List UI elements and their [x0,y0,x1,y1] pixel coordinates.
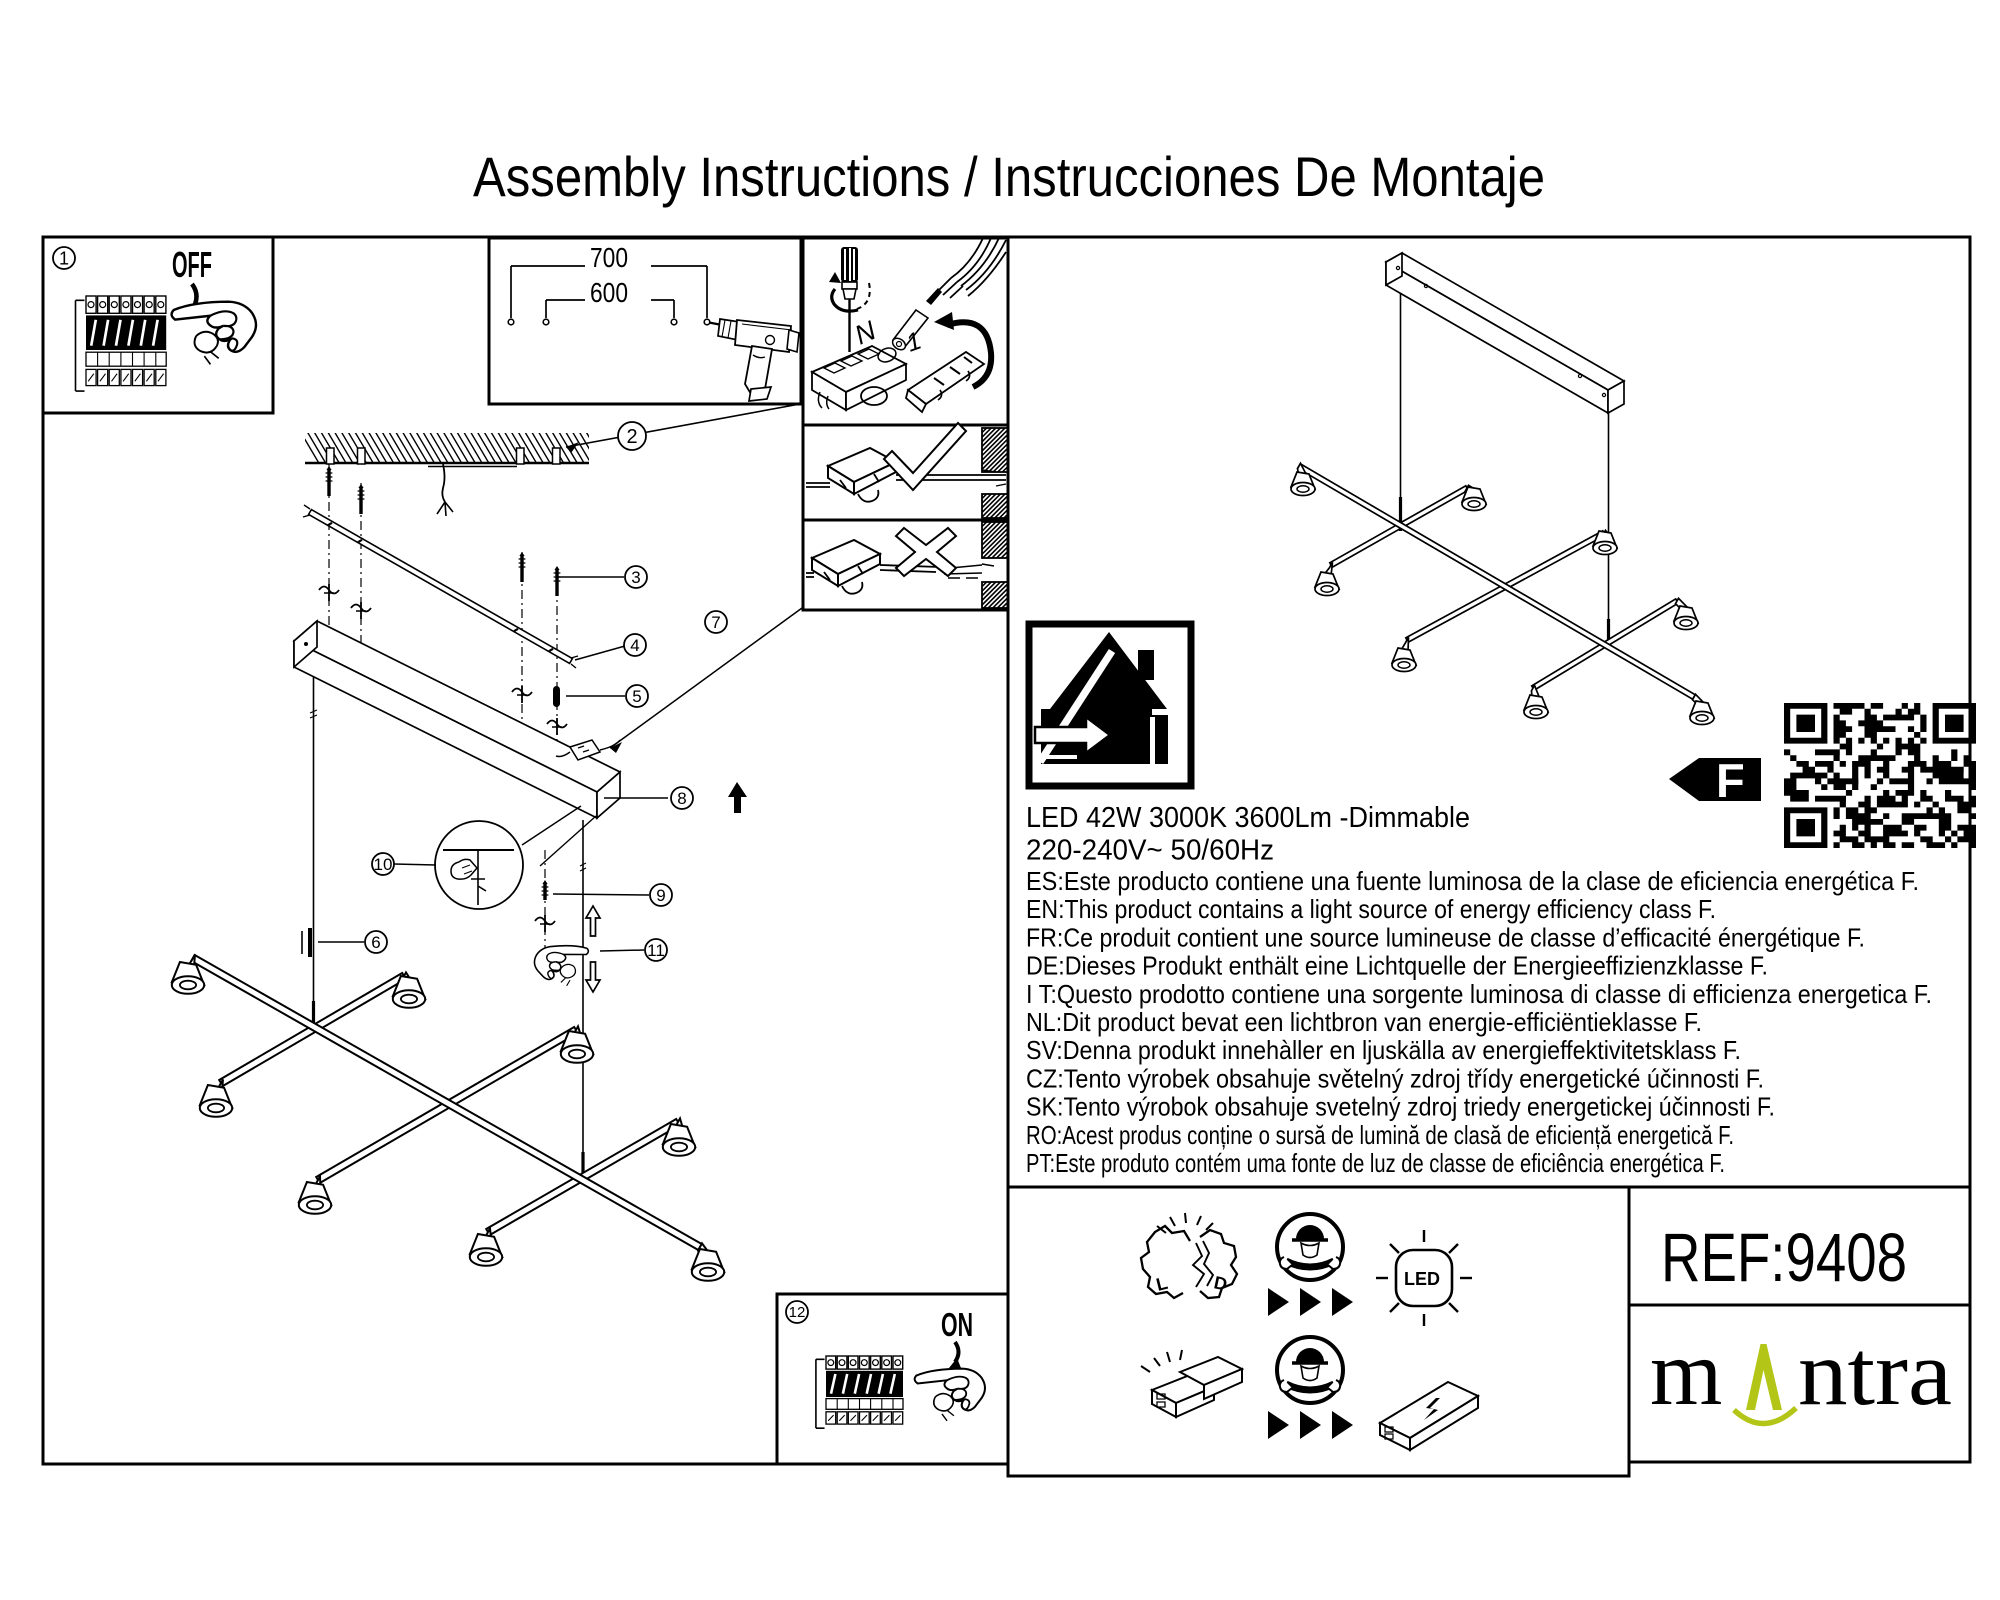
svg-text:11: 11 [647,941,665,960]
svg-text:CZ:Tento výrobek obsahuje svět: CZ:Tento výrobek obsahuje světelný zdroj… [1026,1063,1764,1093]
svg-text:1: 1 [59,248,69,268]
svg-text:3: 3 [631,568,640,587]
svg-text:8: 8 [677,789,686,808]
svg-text:9: 9 [656,886,665,905]
svg-text:OFF: OFF [172,244,212,285]
svg-text:RO:Acest produs conține o surs: RO:Acest produs conține o sursă de lumin… [1026,1120,1734,1150]
svg-text:REF:9408: REF:9408 [1661,1219,1907,1296]
svg-text:220-240V~ 50/60Hz: 220-240V~ 50/60Hz [1026,835,1274,867]
svg-text:ES:Este producto contiene una: ES:Este producto contiene una fuente lum… [1026,866,1919,896]
svg-text:NL:Dit product bevat een licht: NL:Dit product bevat een lichtbron van e… [1026,1007,1702,1037]
svg-text:6: 6 [371,933,380,952]
svg-text:2: 2 [626,426,637,448]
svg-text:FR:Ce produit contient une sou: FR:Ce produit contient une source lumine… [1026,922,1865,952]
svg-text:10: 10 [374,855,393,874]
svg-text:ON: ON [941,1306,973,1343]
svg-text:m: m [1650,1322,1722,1425]
svg-text:DE:Dieses Produkt enthält eine: DE:Dieses Produkt enthält eine Lichtquel… [1026,951,1768,981]
svg-text:F: F [1716,754,1745,807]
svg-text:SK:Tento výrobok obsahuje svet: SK:Tento výrobok obsahuje svetelný zdroj… [1026,1092,1775,1122]
svg-text:12: 12 [789,1304,806,1321]
svg-text:PT:Este produto contém uma fon: PT:Este produto contém uma fonte de luz … [1026,1148,1725,1178]
svg-text:7: 7 [711,613,720,632]
svg-text:Assembly Instructions / Instru: Assembly Instructions / Instrucciones De… [473,145,1545,208]
svg-text:4: 4 [630,636,639,655]
svg-text:5: 5 [632,687,641,706]
svg-text:SV:Denna produkt innehàller en: SV:Denna produkt innehàller en ljuskälla… [1026,1035,1741,1065]
svg-text:I T:Questo prodotto contiene u: I T:Questo prodotto contiene una sorgent… [1026,979,1932,1009]
svg-text:ntra: ntra [1798,1322,1952,1425]
svg-text:LED 42W 3000K 3600Lm -Dimmable: LED 42W 3000K 3600Lm -Dimmable [1026,802,1470,834]
svg-text:EN:This product contains a lig: EN:This product contains a light source … [1026,894,1716,924]
svg-text:LED: LED [1404,1269,1440,1289]
svg-text:600: 600 [590,277,628,308]
svg-text:700: 700 [590,242,628,273]
